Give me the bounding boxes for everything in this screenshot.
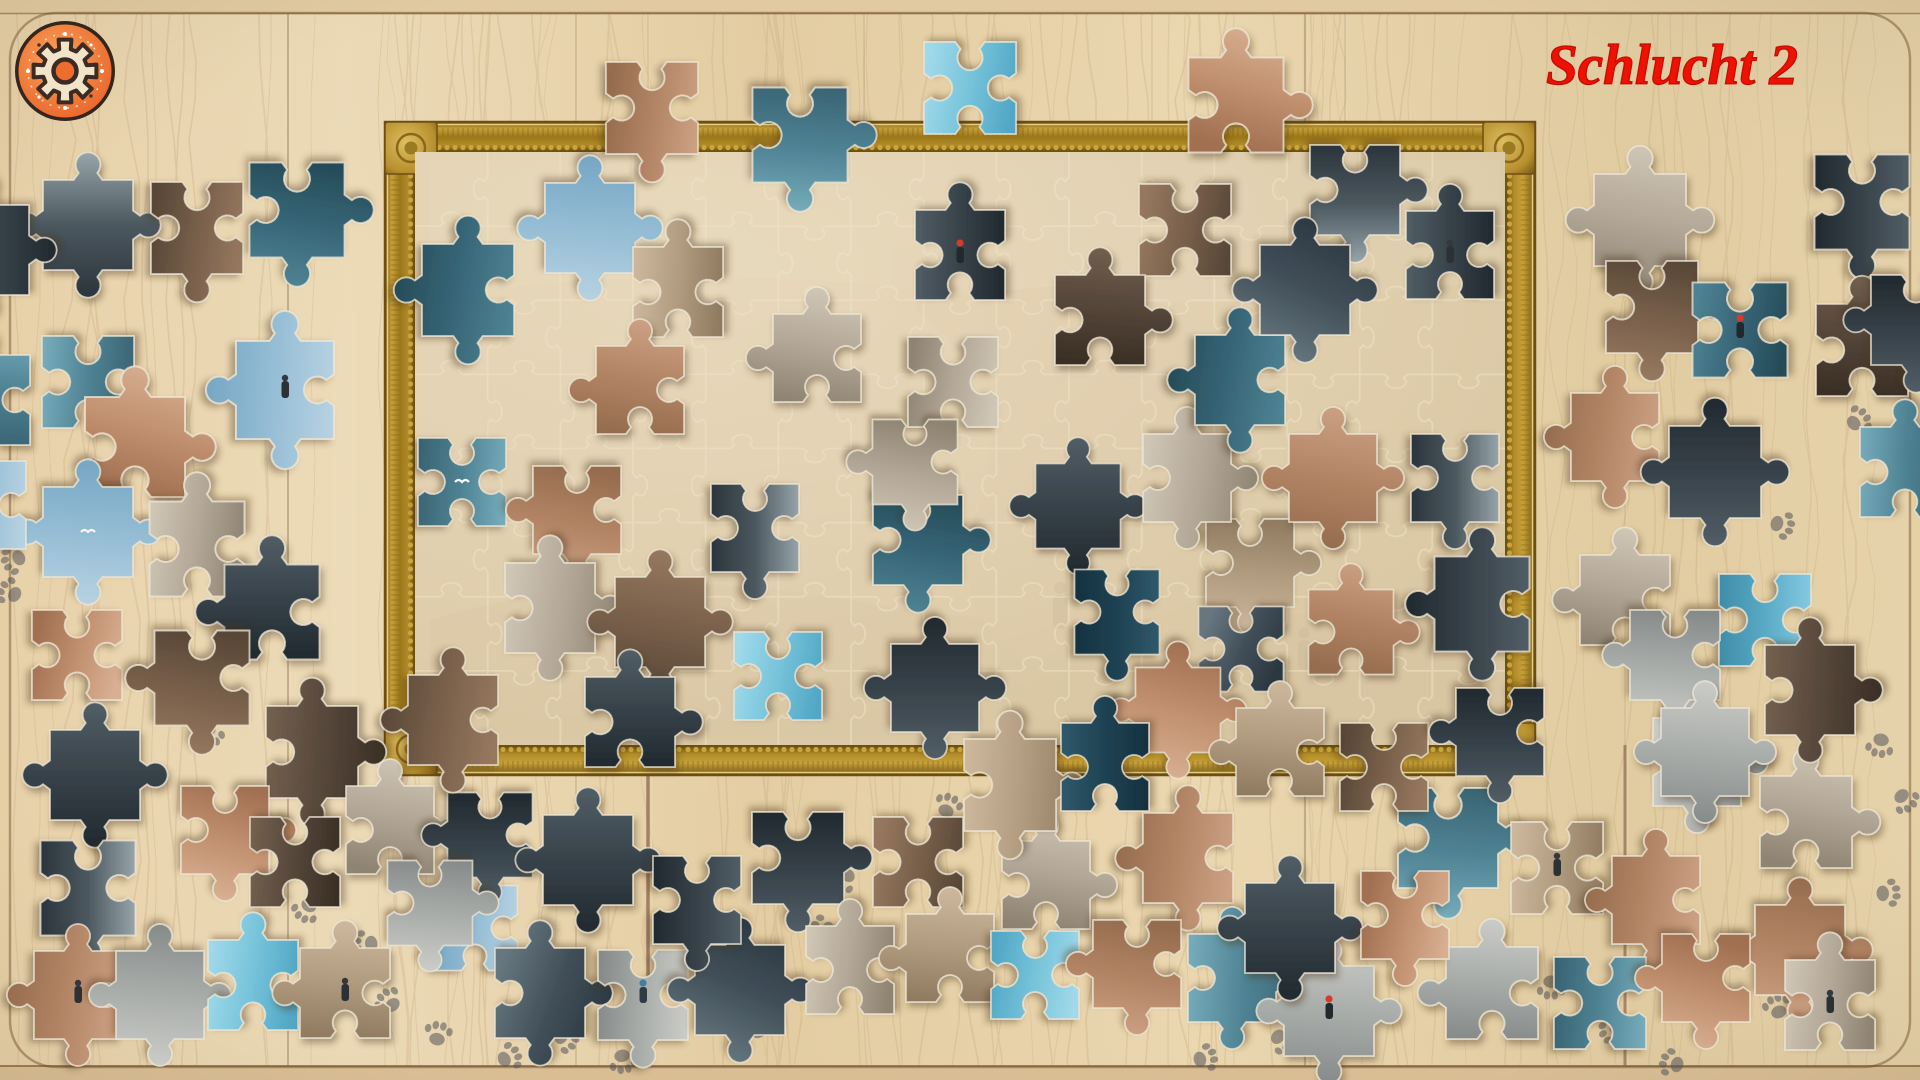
svg-text:Schlucht 2: Schlucht 2 (1546, 34, 1798, 97)
